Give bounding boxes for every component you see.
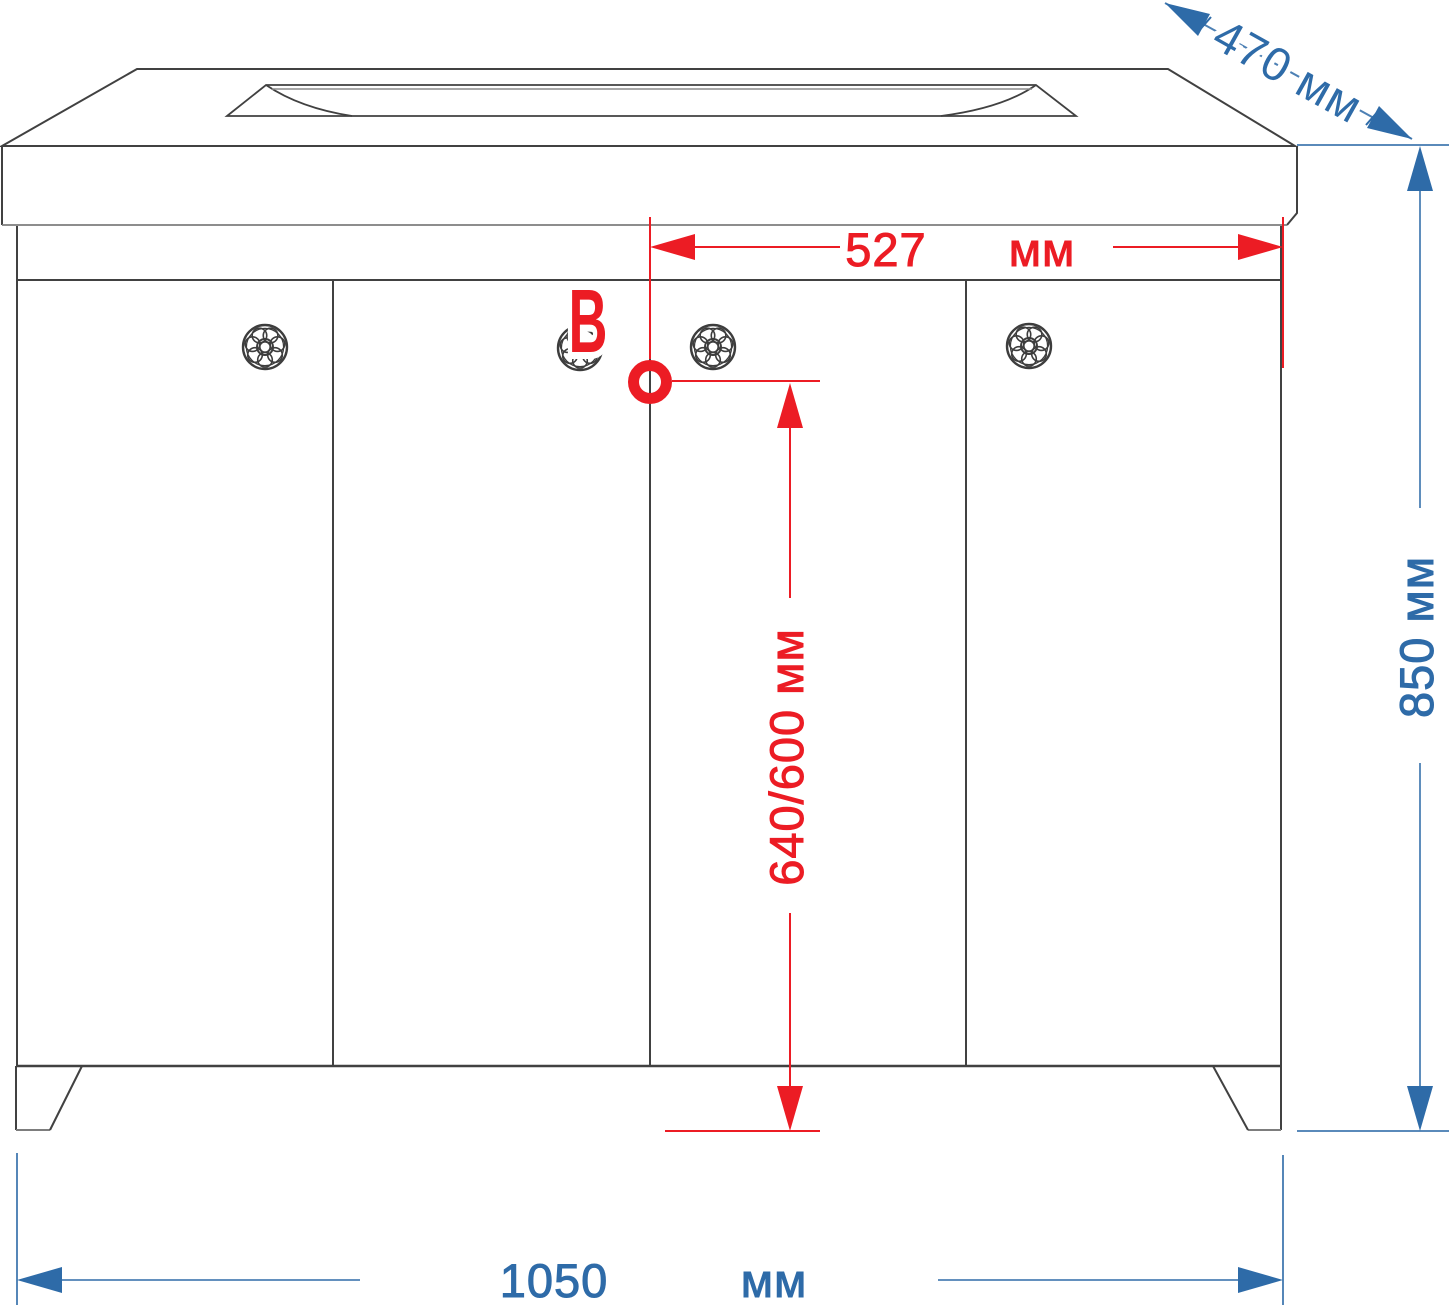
width-dimension-unit: мм xyxy=(741,1254,808,1307)
knob-door-1 xyxy=(243,325,287,369)
hole-height-dimension-label: 640/600 мм xyxy=(760,628,813,886)
height-dimension-label: 850 мм xyxy=(1390,556,1443,718)
offset-dimension-unit: мм xyxy=(1009,223,1076,276)
point-label-b: В xyxy=(569,271,608,372)
knob-door-3 xyxy=(691,325,735,369)
blue-dimensions: 470 мм 850 мм 1050 мм xyxy=(17,3,1449,1307)
countertop-front-face xyxy=(2,146,1297,225)
knob-door-4 xyxy=(1007,324,1051,368)
width-dimension-value: 1050 xyxy=(500,1254,609,1307)
offset-dimension-value: 527 xyxy=(845,223,926,276)
leg-right xyxy=(1213,1066,1281,1130)
vanity-dimension-drawing: 470 мм 850 мм 1050 мм xyxy=(0,0,1449,1310)
countertop-top-face xyxy=(2,69,1295,146)
dimension-hole-height-640-600: 640/600 мм xyxy=(665,381,820,1131)
technical-drawing-canvas: 470 мм 850 мм 1050 мм xyxy=(0,0,1449,1310)
dimension-width-1050: 1050 мм xyxy=(17,1153,1283,1307)
leg-left xyxy=(16,1066,82,1130)
dimension-height-850: 850 мм xyxy=(1297,145,1449,1131)
